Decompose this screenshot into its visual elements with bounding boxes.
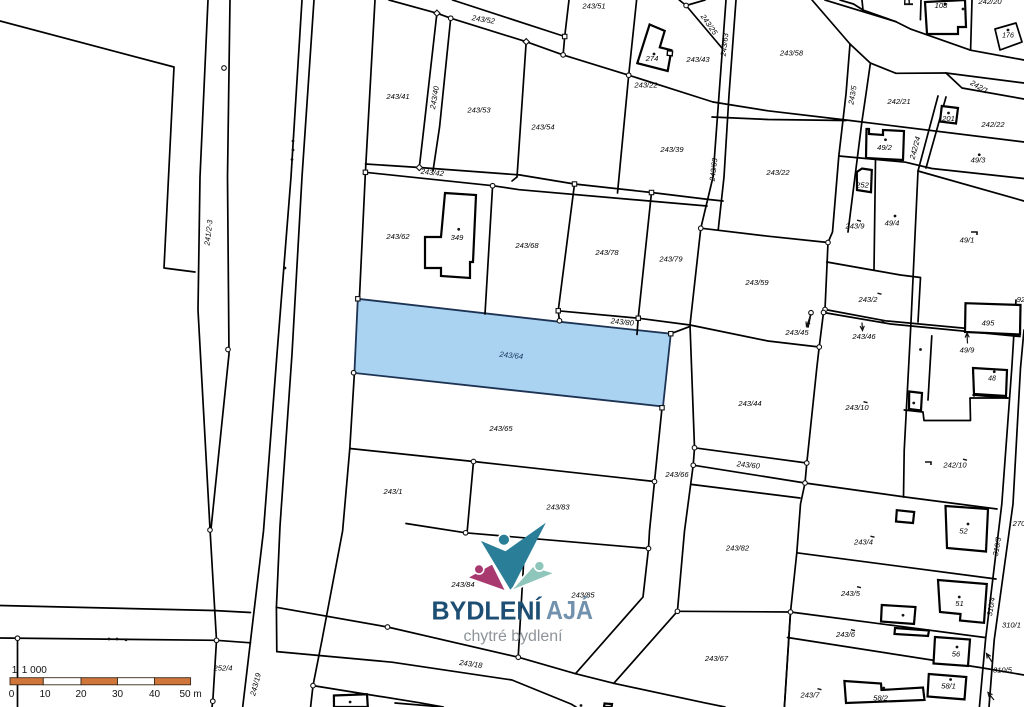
svg-text:0: 0 bbox=[9, 689, 15, 700]
svg-text:243/67: 243/67 bbox=[704, 654, 729, 663]
svg-text:176: 176 bbox=[1002, 33, 1014, 40]
svg-text:1: 1 bbox=[12, 665, 18, 676]
svg-text:242/22: 242/22 bbox=[980, 120, 1005, 129]
svg-text:108: 108 bbox=[935, 1, 948, 10]
svg-text:310/1: 310/1 bbox=[1002, 621, 1021, 630]
svg-text:BYDLENÍ: BYDLENÍ bbox=[432, 596, 543, 626]
svg-text:243/46: 243/46 bbox=[851, 332, 876, 341]
svg-text:243/22: 243/22 bbox=[633, 81, 658, 90]
svg-text:49/1: 49/1 bbox=[960, 236, 975, 245]
svg-text:48: 48 bbox=[988, 376, 996, 383]
svg-text:243/68: 243/68 bbox=[514, 241, 539, 250]
svg-text:58/2: 58/2 bbox=[873, 694, 889, 703]
svg-text:243/6: 243/6 bbox=[835, 630, 856, 639]
svg-text:243/2: 243/2 bbox=[857, 295, 878, 304]
svg-text:10: 10 bbox=[39, 689, 51, 700]
svg-text:243/66: 243/66 bbox=[664, 470, 689, 479]
svg-text:242/20: 242/20 bbox=[977, 0, 1002, 6]
svg-text:243/84: 243/84 bbox=[450, 580, 474, 589]
svg-text:30: 30 bbox=[112, 689, 124, 700]
svg-text:243/54: 243/54 bbox=[530, 123, 554, 132]
svg-text:243/43: 243/43 bbox=[685, 55, 710, 64]
svg-text:49/9: 49/9 bbox=[960, 346, 976, 355]
svg-text:243/62: 243/62 bbox=[385, 232, 410, 241]
svg-text:274: 274 bbox=[645, 54, 659, 63]
svg-text:243/44: 243/44 bbox=[737, 399, 761, 408]
svg-text:252/4: 252/4 bbox=[212, 664, 232, 673]
svg-text:243/4: 243/4 bbox=[853, 538, 873, 547]
svg-text:243/39: 243/39 bbox=[659, 145, 684, 154]
svg-text:243/51: 243/51 bbox=[581, 2, 605, 11]
svg-text:chytré bydlení: chytré bydlení bbox=[464, 628, 564, 645]
svg-text:40: 40 bbox=[149, 689, 161, 700]
svg-text:201: 201 bbox=[941, 114, 955, 123]
svg-text:243/78: 243/78 bbox=[594, 248, 619, 257]
svg-text:243/7: 243/7 bbox=[799, 691, 820, 700]
svg-text:58/1: 58/1 bbox=[941, 682, 956, 691]
svg-text:310/5: 310/5 bbox=[993, 666, 1013, 675]
svg-text:243/58: 243/58 bbox=[779, 49, 804, 58]
svg-text:51: 51 bbox=[955, 599, 963, 608]
svg-text:243/65: 243/65 bbox=[488, 424, 513, 433]
svg-text:52: 52 bbox=[959, 527, 968, 536]
svg-text:243/22: 243/22 bbox=[765, 168, 790, 177]
svg-text:243/59: 243/59 bbox=[744, 278, 769, 287]
svg-text:50 m: 50 m bbox=[179, 689, 201, 700]
svg-text:P: P bbox=[901, 0, 916, 6]
svg-text:AJÁ: AJÁ bbox=[546, 595, 593, 625]
svg-text:349: 349 bbox=[451, 233, 464, 242]
svg-text:243/9: 243/9 bbox=[844, 222, 865, 231]
svg-text:270: 270 bbox=[1012, 519, 1024, 528]
svg-text:92: 92 bbox=[1017, 295, 1024, 304]
svg-text:243/1: 243/1 bbox=[382, 487, 402, 496]
svg-text:56: 56 bbox=[952, 650, 961, 659]
svg-text:243/41: 243/41 bbox=[385, 92, 409, 101]
svg-text:243/45: 243/45 bbox=[784, 328, 809, 337]
svg-text:1 000: 1 000 bbox=[22, 665, 47, 676]
svg-text:242/21: 242/21 bbox=[886, 97, 910, 106]
svg-text:49/3: 49/3 bbox=[971, 156, 987, 165]
svg-text:49/4: 49/4 bbox=[885, 219, 900, 228]
svg-text:495: 495 bbox=[982, 319, 995, 328]
svg-text:243/79: 243/79 bbox=[658, 255, 683, 264]
svg-text:242/10: 242/10 bbox=[942, 461, 967, 470]
svg-text:243/53: 243/53 bbox=[466, 106, 491, 115]
svg-text:252: 252 bbox=[855, 181, 869, 190]
svg-text:243/10: 243/10 bbox=[844, 403, 869, 412]
svg-text:243/5: 243/5 bbox=[840, 589, 861, 598]
svg-text:20: 20 bbox=[75, 689, 87, 700]
svg-text:49/2: 49/2 bbox=[877, 143, 893, 152]
svg-text:243/82: 243/82 bbox=[725, 544, 750, 553]
svg-text:243/83: 243/83 bbox=[545, 503, 570, 512]
